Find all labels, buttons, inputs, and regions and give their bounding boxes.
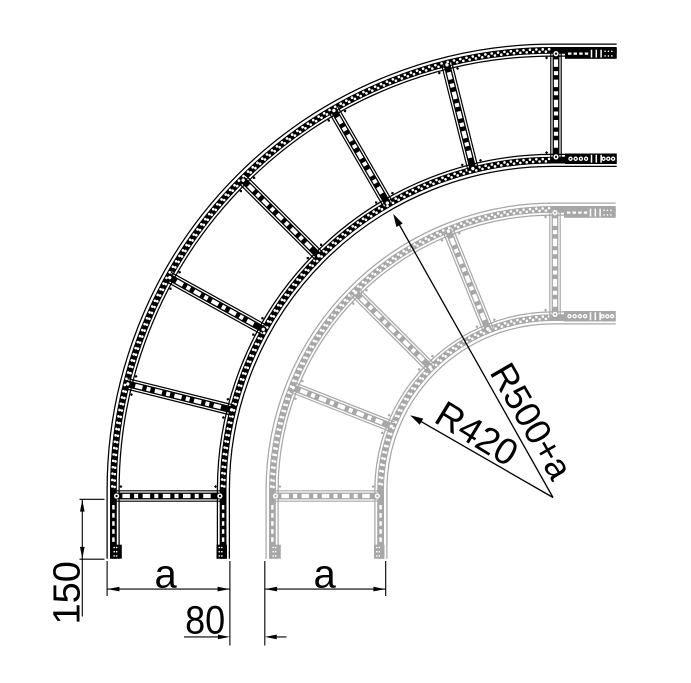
svg-text:a: a xyxy=(154,552,177,596)
svg-text:a: a xyxy=(313,552,336,596)
svg-text:80: 80 xyxy=(185,599,225,643)
svg-text:150: 150 xyxy=(47,561,89,624)
